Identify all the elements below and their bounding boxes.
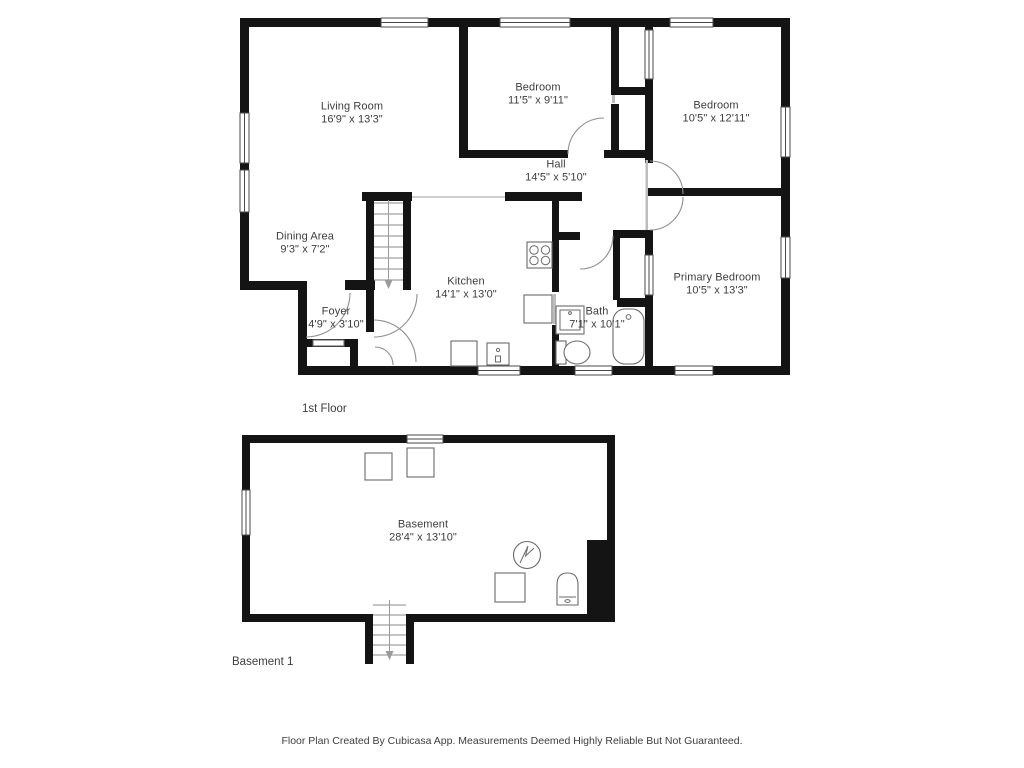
staircase-icon xyxy=(374,200,403,289)
room-label-bedroom-2: Bedroom 10'5" x 12'11" xyxy=(682,100,749,125)
room-name: Bedroom xyxy=(682,100,749,113)
kitchen-sink-icon xyxy=(487,343,509,365)
room-dims: 10'5" x 12'11" xyxy=(682,112,749,125)
room-label-basement: Basement 28'4" x 13'10" xyxy=(389,519,457,544)
water-heater-icon xyxy=(514,542,541,569)
water-tank-icon xyxy=(557,573,578,605)
door-arc xyxy=(568,118,604,154)
window xyxy=(781,237,790,278)
door-arc xyxy=(375,347,393,365)
window xyxy=(381,18,428,27)
room-label-kitchen: Kitchen 14'1" x 13'0" xyxy=(435,276,497,301)
door-arc xyxy=(580,236,613,269)
room-name: Bedroom xyxy=(508,82,568,95)
room-dims: 4'9" x 3'10" xyxy=(308,318,363,331)
door-jambs xyxy=(553,95,648,324)
room-name: Primary Bedroom xyxy=(673,272,760,285)
floor-title-1st-floor: 1st Floor xyxy=(302,403,347,415)
window xyxy=(675,366,713,375)
room-name: Dining Area xyxy=(276,231,334,244)
appliance-box-icon xyxy=(407,448,434,477)
stove-icon xyxy=(527,242,552,268)
door-arc xyxy=(650,197,683,230)
window xyxy=(575,366,612,375)
window xyxy=(478,366,520,375)
room-name: Foyer xyxy=(308,306,363,319)
room-dims: 14'1" x 13'0" xyxy=(435,288,497,301)
basement-plan xyxy=(242,435,615,664)
footer-disclaimer: Floor Plan Created By Cubicasa App. Meas… xyxy=(281,735,742,747)
basement-staircase-icon xyxy=(373,600,406,660)
kitchen-counter xyxy=(524,295,552,323)
room-label-hall: Hall 14'5" x 5'10" xyxy=(525,159,587,184)
kitchen-cabinet xyxy=(451,341,477,366)
storage-box-icon xyxy=(365,453,392,480)
room-dims: 10'5" x 13'3" xyxy=(673,284,760,297)
toilet-icon xyxy=(556,341,590,364)
sliding-closet-door xyxy=(645,30,653,79)
door-arc xyxy=(374,320,416,362)
room-label-primary-bedroom: Primary Bedroom 10'5" x 13'3" xyxy=(673,272,760,297)
floor-title-basement-1: Basement 1 xyxy=(232,656,293,668)
window xyxy=(670,18,713,27)
window xyxy=(240,170,249,212)
chimney-block xyxy=(587,540,615,618)
room-dims: 14'5" x 5'10" xyxy=(525,171,587,184)
room-label-dining-area: Dining Area 9'3" x 7'2" xyxy=(276,231,334,256)
window xyxy=(242,490,250,535)
room-dims: 9'3" x 7'2" xyxy=(276,243,334,256)
laundry-box-icon xyxy=(495,573,525,602)
room-label-living-room: Living Room 16'9" x 13'3" xyxy=(321,101,383,126)
room-name: Kitchen xyxy=(435,276,497,289)
room-label-bath: Bath 7'1" x 10'1" xyxy=(569,306,624,331)
room-name: Bath xyxy=(569,306,624,319)
window xyxy=(407,435,443,443)
room-label-foyer: Foyer 4'9" x 3'10" xyxy=(308,306,363,331)
sliding-closet-door xyxy=(645,255,653,295)
room-dims: 11'5" x 9'11" xyxy=(508,94,568,107)
room-name: Hall xyxy=(525,159,587,172)
room-dims: 16'9" x 13'3" xyxy=(321,113,383,126)
window xyxy=(781,107,790,157)
room-name: Living Room xyxy=(321,101,383,114)
foyer-closet-door xyxy=(313,340,344,346)
door-arc xyxy=(374,294,417,337)
window xyxy=(240,113,249,163)
window xyxy=(500,18,570,27)
floor-plan-drawing xyxy=(0,0,1024,768)
floor-plan-canvas: Living Room 16'9" x 13'3" Bedroom 11'5" … xyxy=(0,0,1024,768)
room-name: Basement xyxy=(389,519,457,532)
room-dims: 28'4" x 13'10" xyxy=(389,531,457,544)
room-dims: 7'1" x 10'1" xyxy=(569,318,624,331)
room-label-bedroom-1: Bedroom 11'5" x 9'11" xyxy=(508,82,568,107)
